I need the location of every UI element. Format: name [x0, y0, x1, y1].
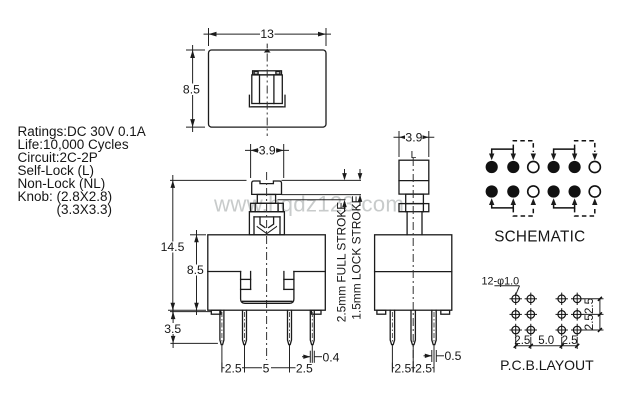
svg-text:8.5: 8.5 [183, 83, 200, 97]
svg-text:1.5mm LOCK STROKE: 1.5mm LOCK STROKE [349, 195, 363, 319]
svg-text:5: 5 [263, 362, 270, 376]
svg-text:2.5: 2.5 [562, 335, 578, 347]
svg-text:2.5: 2.5 [394, 362, 411, 376]
svg-text:8.5: 8.5 [187, 263, 204, 277]
svg-text:3.9: 3.9 [405, 130, 422, 144]
svg-text:13: 13 [260, 27, 274, 41]
svg-text:2.5: 2.5 [584, 314, 596, 330]
svg-text:2.5: 2.5 [415, 362, 432, 376]
svg-text:2.5: 2.5 [514, 335, 530, 347]
svg-text:SCHEMATIC: SCHEMATIC [494, 229, 585, 246]
svg-text:0.5: 0.5 [445, 349, 462, 363]
svg-text:2.5: 2.5 [584, 298, 596, 314]
svg-text:3.9: 3.9 [259, 144, 276, 158]
svg-text:2.5: 2.5 [225, 362, 242, 376]
svg-text:0.4: 0.4 [323, 350, 340, 364]
svg-text:3.5: 3.5 [164, 322, 181, 336]
svg-text:2.5mm FULL STROKE: 2.5mm FULL STROKE [334, 202, 348, 323]
svg-text:www.hqdz123.com: www.hqdz123.com [213, 192, 404, 217]
svg-text:2.5: 2.5 [296, 362, 313, 376]
svg-text:5.0: 5.0 [538, 335, 554, 347]
svg-text:14.5: 14.5 [161, 240, 185, 254]
svg-text:(3.3X3.3): (3.3X3.3) [57, 202, 113, 217]
svg-text:P.C.B.LAYOUT: P.C.B.LAYOUT [500, 357, 594, 373]
